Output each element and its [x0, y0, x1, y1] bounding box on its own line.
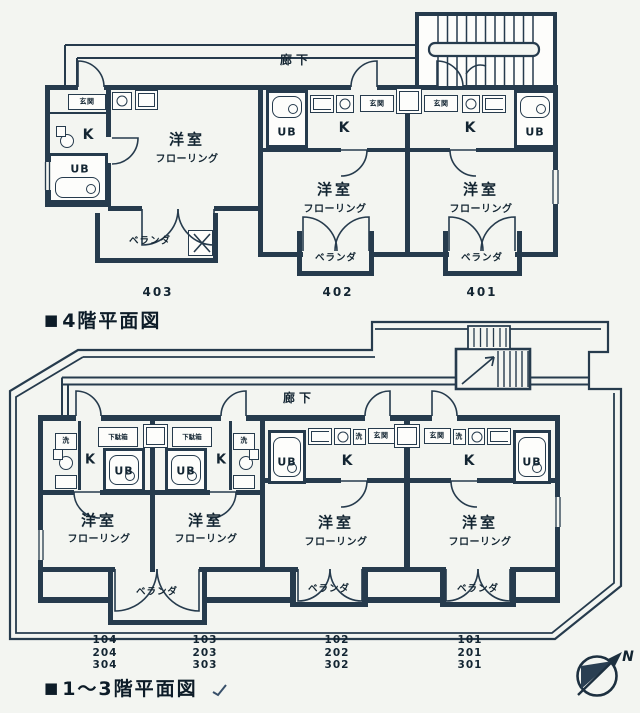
unit-number: 203 — [193, 647, 218, 660]
door-arc — [341, 481, 367, 507]
veranda-label-102: ベランダ — [308, 584, 350, 594]
entrance-label-101: 玄関 — [430, 433, 445, 440]
ub-label-102: UB — [277, 457, 296, 468]
kitchen-label-102: K — [342, 454, 353, 468]
unit-number: 101 — [458, 634, 483, 647]
kitchen-label-104: K — [85, 454, 95, 467]
ub-label-103: UB — [176, 466, 195, 477]
floor-type-label-101: フローリング — [449, 538, 512, 548]
unit-numbers-col-103: 103 203 303 — [193, 634, 218, 672]
room-label-101: 洋室 — [462, 516, 498, 531]
stairs-13f — [456, 349, 530, 389]
unit-number: 302 — [325, 659, 350, 672]
unit-numbers-col-104: 104 204 304 — [93, 634, 118, 672]
floor-type-label-102: フローリング — [305, 538, 368, 548]
veranda-label-101: ベランダ — [457, 584, 499, 594]
unit-number: 204 — [93, 647, 118, 660]
floor13-linework — [0, 0, 640, 713]
unit-number: 301 — [458, 659, 483, 672]
unit-number: 103 — [193, 634, 218, 647]
door-arc — [365, 391, 390, 416]
unit-number: 102 — [325, 634, 350, 647]
compass-icon — [578, 652, 623, 696]
unit-number: 304 — [93, 659, 118, 672]
door-arc — [76, 391, 101, 416]
kitchen-label-103: K — [216, 454, 226, 467]
unit-number: 202 — [325, 647, 350, 660]
caption-tick — [213, 685, 226, 695]
ub-label-101: UB — [522, 457, 541, 468]
floor-type-label-103: フローリング — [175, 535, 238, 545]
laundry-label-104: 洗 — [62, 438, 70, 445]
kitchen-label-101: K — [464, 454, 475, 468]
compass-north-label: N — [622, 650, 634, 664]
unit-numbers-col-101: 101 201 301 — [458, 634, 483, 672]
caption-text: 1〜3階平面図 — [62, 674, 197, 701]
door-arc — [432, 391, 457, 416]
shoe-label-103: 下駄箱 — [182, 434, 202, 441]
entrance-label-102: 玄関 — [374, 433, 389, 440]
laundry-label-102: 洗 — [355, 434, 363, 441]
unit-number: 201 — [458, 647, 483, 660]
laundry-label-103: 洗 — [240, 438, 248, 445]
unit-numbers-col-102: 102 202 302 — [325, 634, 350, 672]
unit-number: 104 — [93, 634, 118, 647]
ub-label-104: UB — [114, 466, 133, 477]
corridor-label-13f: 廊下 — [283, 392, 315, 404]
room-label-104: 洋室 — [81, 514, 117, 529]
shared-veranda-label: ベランダ — [136, 587, 178, 597]
floor-plan-sheet: 廊下 玄関 K UB 洋室 フローリング ベランダ 玄関 K UB 洋室 フロー… — [0, 0, 640, 713]
caption-13f: ■ 1〜3階平面図 — [44, 674, 198, 701]
floor-type-label-104: フローリング — [68, 535, 131, 545]
shoe-label-104: 下駄箱 — [108, 434, 128, 441]
room-label-103: 洋室 — [188, 514, 224, 529]
room-label-102: 洋室 — [318, 516, 354, 531]
door-arc — [221, 391, 246, 416]
door-arc — [451, 481, 477, 507]
laundry-label-101: 洗 — [455, 434, 463, 441]
caption-bullet-icon: ■ — [44, 681, 58, 696]
unit-number: 303 — [193, 659, 218, 672]
